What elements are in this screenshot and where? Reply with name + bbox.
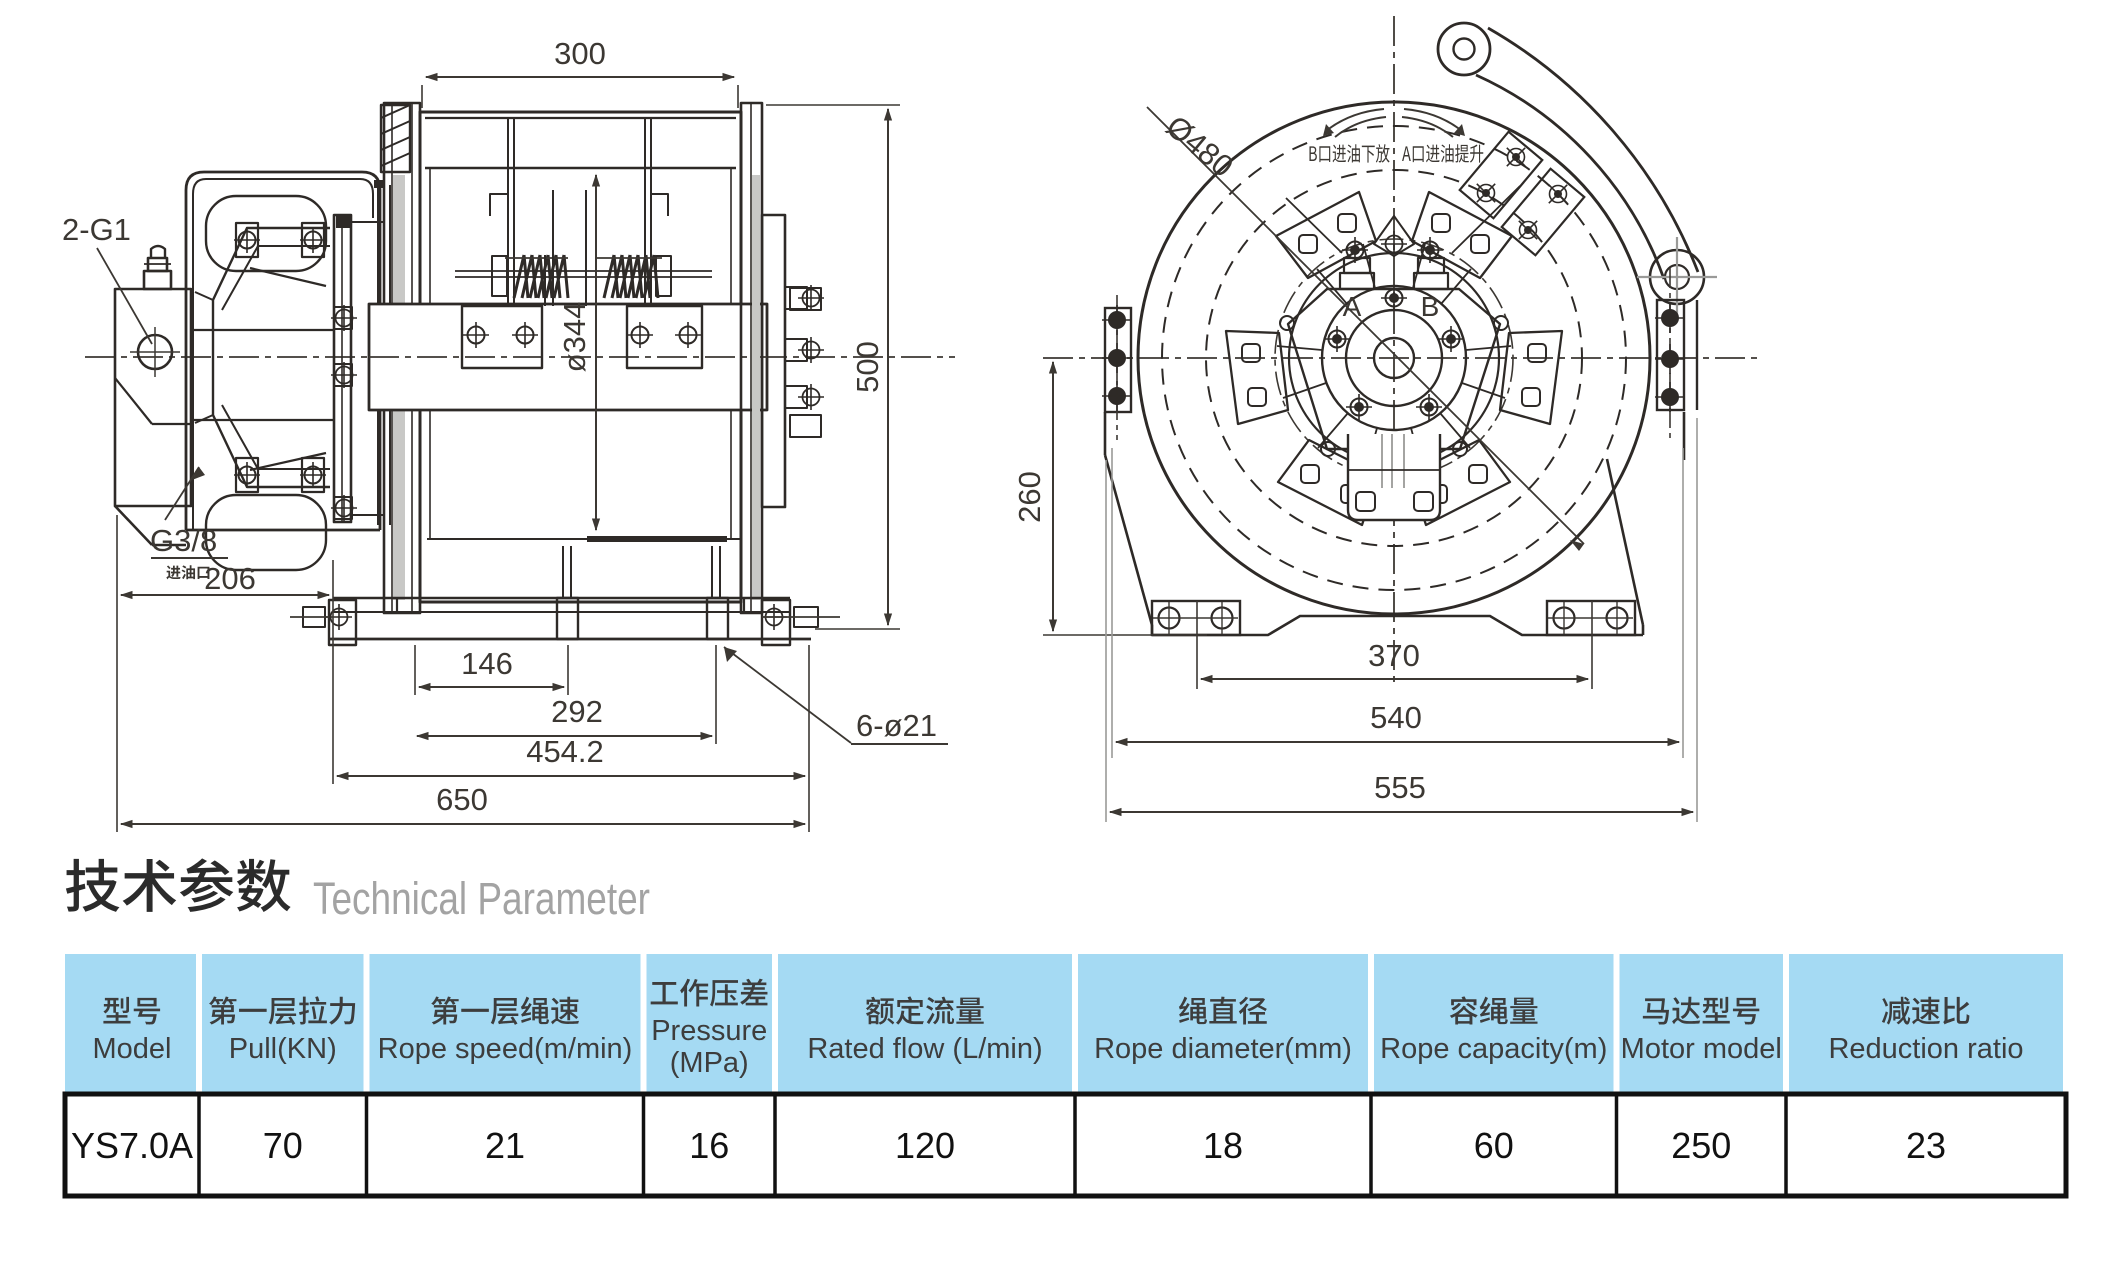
svg-text:300: 300: [554, 36, 606, 71]
svg-text:Technical Parameter: Technical Parameter: [313, 873, 650, 924]
svg-text:206: 206: [204, 561, 256, 596]
svg-text:Rope diameter(mm): Rope diameter(mm): [1094, 1033, 1352, 1065]
svg-text:120: 120: [895, 1125, 955, 1166]
svg-text:650: 650: [436, 782, 488, 817]
svg-text:Reduction ratio: Reduction ratio: [1828, 1033, 2023, 1065]
svg-text:370: 370: [1368, 638, 1420, 673]
svg-text:16: 16: [689, 1125, 729, 1166]
svg-text:Ø480: Ø480: [1160, 109, 1241, 185]
svg-text:555: 555: [1374, 770, 1426, 805]
svg-text:B: B: [1421, 291, 1440, 322]
svg-text:250: 250: [1671, 1125, 1731, 1166]
svg-text:G3/8: G3/8: [150, 523, 217, 558]
svg-text:260: 260: [1012, 471, 1047, 523]
svg-text:70: 70: [263, 1125, 303, 1166]
svg-text:146: 146: [461, 646, 513, 681]
svg-text:Pressure: Pressure: [651, 1015, 767, 1047]
svg-text:6-ø21: 6-ø21: [856, 708, 937, 743]
svg-text:(MPa): (MPa): [670, 1047, 749, 1079]
svg-text:540: 540: [1370, 700, 1422, 735]
svg-text:Pull(KN): Pull(KN): [229, 1033, 337, 1065]
svg-text:18: 18: [1203, 1125, 1243, 1166]
svg-text:23: 23: [1906, 1125, 1946, 1166]
svg-text:2-G1: 2-G1: [62, 212, 131, 247]
svg-text:500: 500: [850, 341, 885, 393]
svg-text:YS7.0A: YS7.0A: [71, 1125, 193, 1166]
svg-text:292: 292: [551, 694, 603, 729]
svg-text:Motor model: Motor model: [1621, 1033, 1782, 1065]
svg-text:21: 21: [485, 1125, 525, 1166]
svg-text:ø344: ø344: [557, 302, 592, 373]
svg-text:Rope capacity(m): Rope capacity(m): [1380, 1033, 1607, 1065]
svg-text:60: 60: [1474, 1125, 1514, 1166]
svg-text:Rope speed(m/min): Rope speed(m/min): [378, 1033, 633, 1065]
svg-text:Rated flow (L/min): Rated flow (L/min): [807, 1033, 1042, 1065]
svg-text:454.2: 454.2: [526, 734, 604, 769]
svg-text:Model: Model: [93, 1033, 172, 1065]
